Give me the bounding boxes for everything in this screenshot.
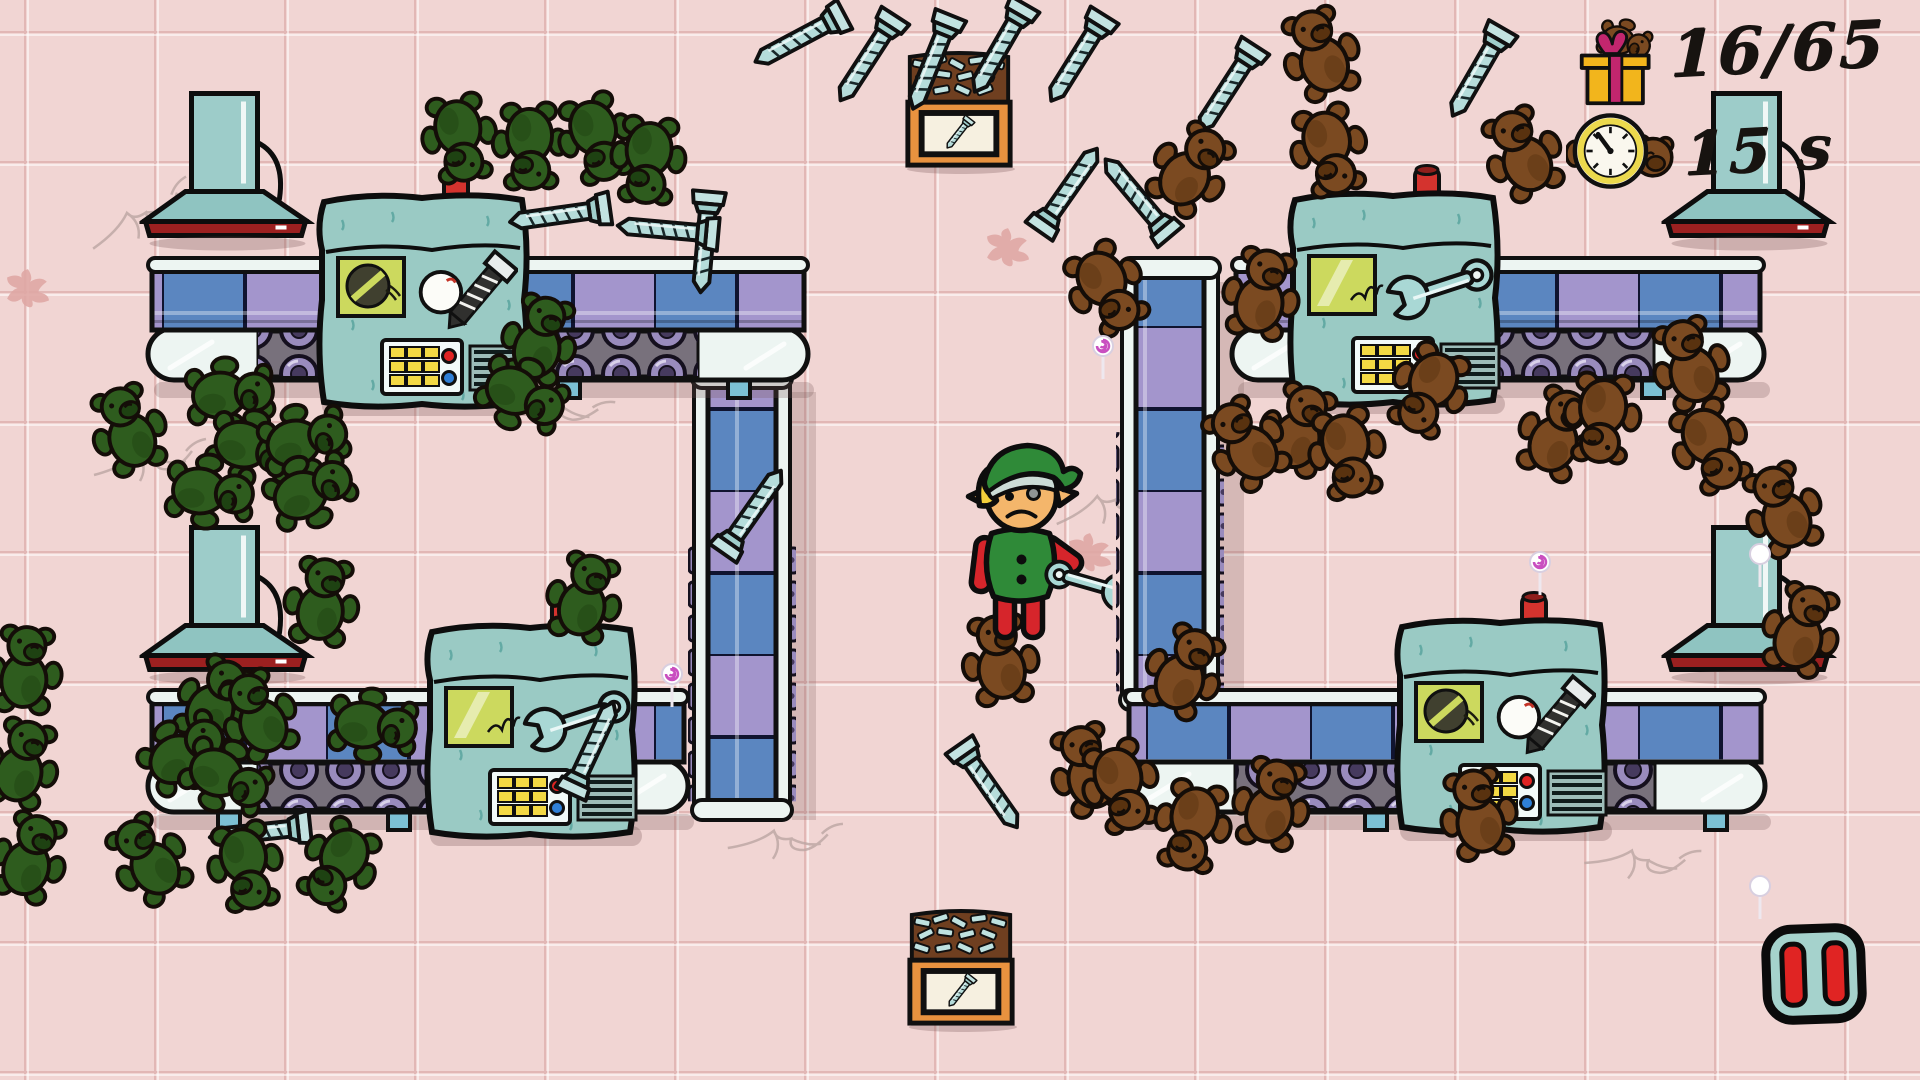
teddy-bear-brown: [1470, 98, 1576, 210]
stopwatch-icon: [1566, 108, 1678, 194]
pause-bar: [1778, 941, 1807, 1008]
teddy-bear-brown: [1270, 0, 1372, 108]
candy-swirl-decoration: [1093, 336, 1113, 379]
candy-swirl-decoration: [1750, 876, 1770, 919]
conveyor-belt-vertical: [688, 368, 816, 820]
floor-splat-decal: [7, 269, 49, 307]
pause-bar: [1820, 940, 1849, 1007]
teddy-bear-green: [0, 624, 66, 716]
bolt: [1026, 139, 1111, 241]
candy-swirl-decoration: [1530, 552, 1550, 595]
teddy-bear-brown: [1281, 98, 1377, 203]
teddy-bear-brown: [1301, 402, 1394, 504]
bolt-bin: [909, 911, 1017, 1032]
bolt: [1037, 6, 1118, 109]
teddy-bear-green: [0, 806, 78, 911]
timer-value: 15 s: [1684, 117, 1835, 185]
floor-splat-decal: [987, 228, 1029, 266]
teddy-bear-green: [416, 89, 504, 186]
game-screen: 16/65 15 s: [0, 0, 1920, 1080]
teddy-bear-green: [0, 713, 68, 815]
bolt: [1438, 20, 1517, 124]
timer: 15 s: [1566, 108, 1834, 194]
elf-player-character[interactable]: [969, 446, 1141, 638]
extractor-lamp: [144, 94, 308, 251]
gift-icon: [1576, 18, 1662, 114]
toy-counter: 16/65: [1576, 18, 1887, 114]
toy-counter-value: 16/65: [1670, 12, 1887, 87]
pause-button[interactable]: [1760, 922, 1867, 1026]
bolt: [748, 0, 853, 76]
teddy-bear-green: [491, 102, 568, 190]
bolt: [946, 735, 1031, 837]
teddy-bear-green: [279, 554, 364, 649]
